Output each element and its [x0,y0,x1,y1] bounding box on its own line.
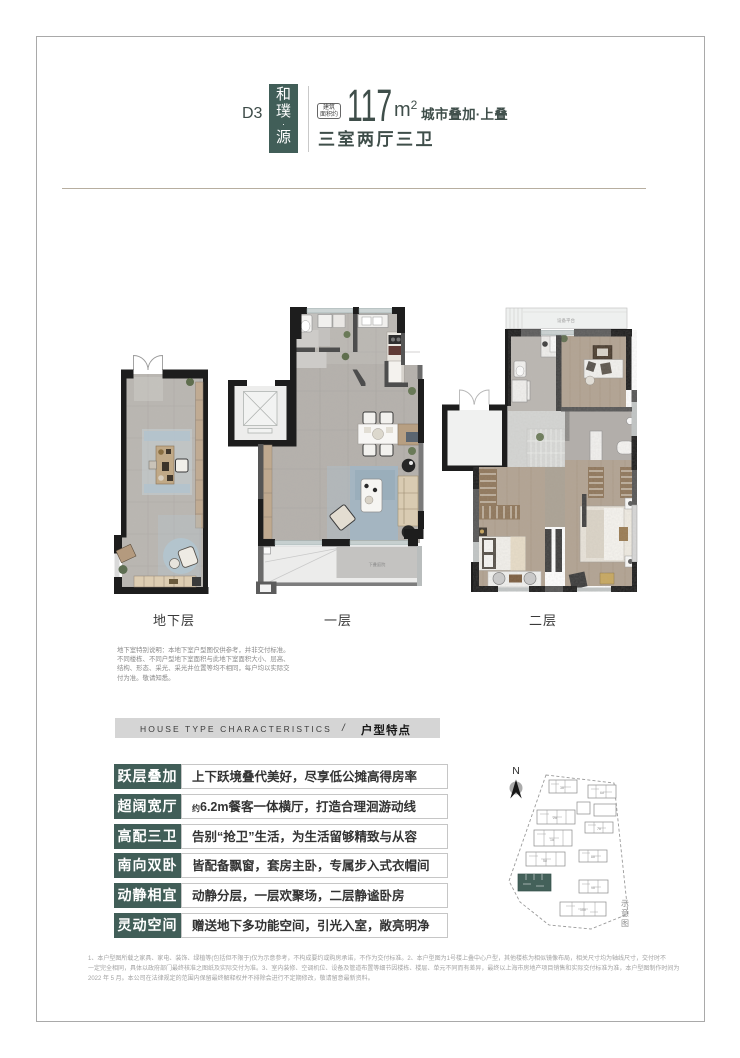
svg-text:1#: 1# [550,838,554,842]
svg-text:10#: 10# [580,908,586,912]
svg-text:N: N [512,765,520,777]
svg-text:9#: 9# [591,886,595,890]
svg-text:下叠庭院: 下叠庭院 [369,561,387,568]
svg-text:2#: 2# [553,816,557,820]
svg-text:6#: 6# [600,791,604,795]
svg-text:8#: 8# [591,855,595,859]
svg-text:设备平台: 设备平台 [557,317,575,324]
svg-text:7#: 7# [597,827,601,831]
svg-text:3#: 3# [560,786,564,790]
svg-text:示: 示 [621,899,629,908]
svg-text:图: 图 [621,919,629,928]
svg-text:5#: 5# [543,859,547,863]
svg-text:意: 意 [621,908,629,918]
